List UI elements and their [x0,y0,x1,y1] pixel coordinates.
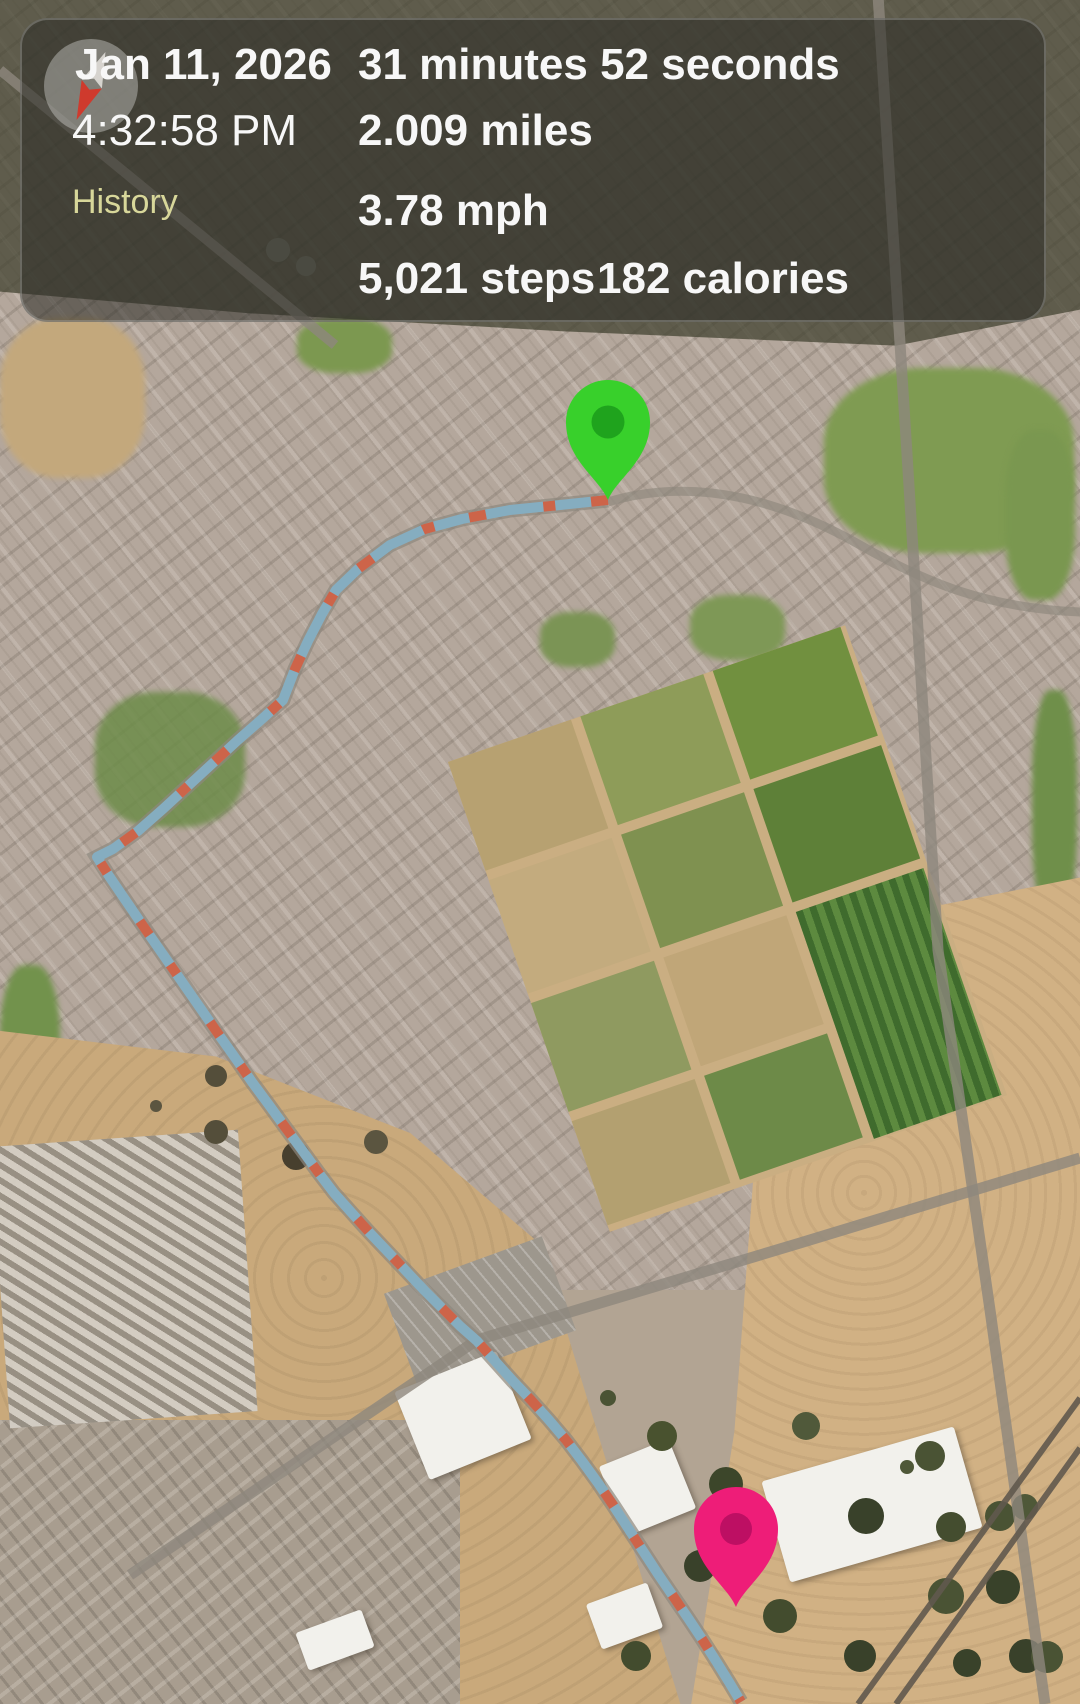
activity-duration: 31 minutes 52 seconds [358,40,840,90]
start-marker-icon [566,380,650,500]
activity-distance: 2.009 miles [358,106,593,156]
satellite-map[interactable]: Jan 11, 2026 4:32:58 PM History 31 minut… [0,0,1080,1704]
end-marker-icon [694,1487,778,1607]
route-polyline [97,500,741,1702]
activity-time: 4:32:58 PM [72,106,297,156]
activity-speed: 3.78 mph [358,186,549,236]
railroad [858,1398,1080,1704]
route-dashes [97,500,741,1702]
activity-calories: 182 calories [597,254,849,304]
history-label: History [72,183,178,222]
activity-date: Jan 11, 2026 [75,40,332,90]
activity-steps: 5,021 steps [358,254,595,304]
